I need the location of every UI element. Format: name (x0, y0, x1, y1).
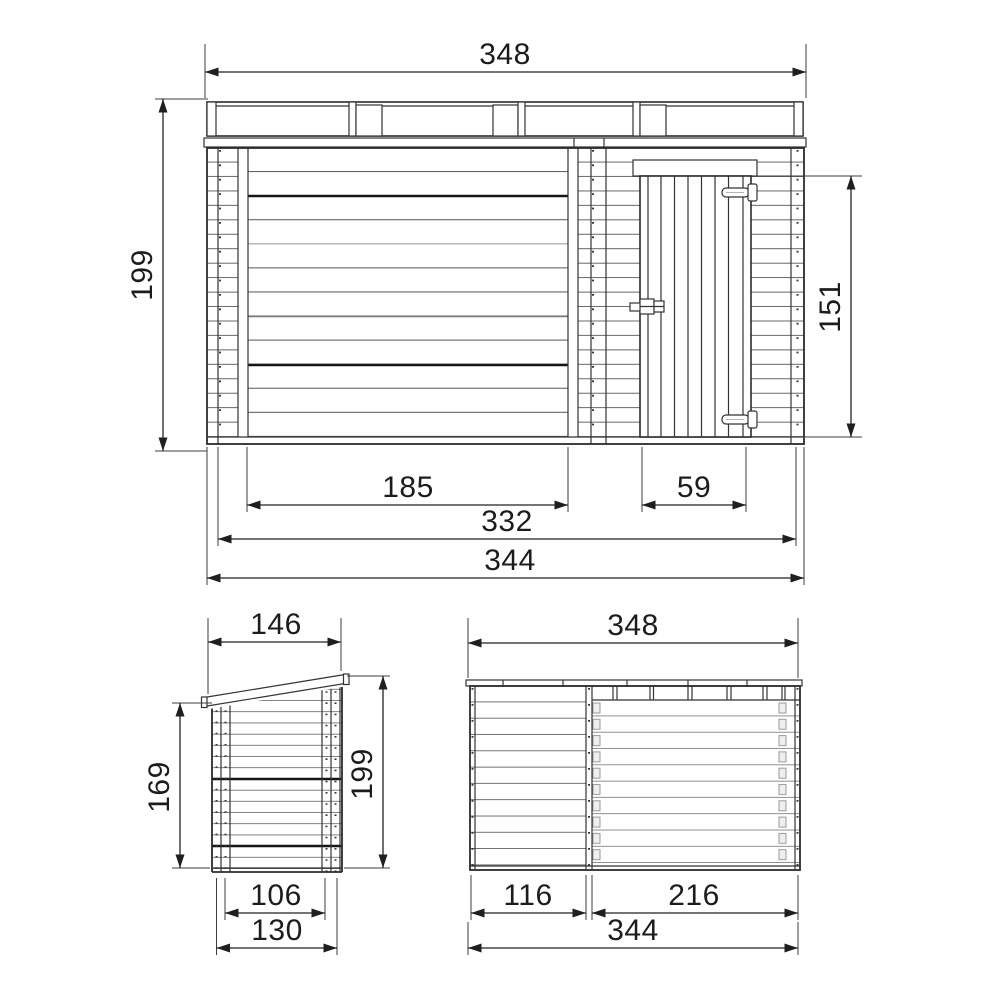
drawing-canvas: 348 199 151 185 59 (0, 0, 1000, 1000)
rear-elevation-view: 348 116 216 344 (466, 609, 802, 955)
dim-label-rear-216: 216 (668, 879, 720, 912)
rear-top-rail-ticks (613, 686, 785, 700)
shed-technical-drawing: 348 199 151 185 59 (0, 0, 1000, 1000)
dim-front-roof-width: 348 (205, 38, 806, 98)
dim-front-door-width: 59 (642, 447, 746, 512)
dim-label-front-348: 348 (479, 38, 531, 71)
dim-label-front-344: 344 (484, 544, 536, 577)
dim-label-front-185: 185 (382, 471, 434, 504)
front-left-log-ends (208, 148, 238, 437)
dim-label-rear-116: 116 (503, 879, 552, 912)
dim-label-rear-348: 348 (607, 609, 659, 642)
door-header-board (633, 160, 757, 176)
dim-side-wall-height: 169 (143, 703, 212, 868)
dim-label-side-169: 169 (143, 761, 176, 813)
dim-label-side-146: 146 (250, 608, 302, 641)
rear-right-section (592, 700, 800, 863)
dim-label-front-332: 332 (481, 505, 533, 538)
dim-rear-overall-width: 344 (468, 914, 798, 955)
dim-label-side-106: 106 (250, 879, 302, 912)
dim-front-height: 199 (126, 99, 208, 451)
front-door (630, 160, 757, 437)
dim-front-plank-wall-width: 185 (247, 447, 568, 512)
side-wall (212, 680, 342, 872)
dim-label-side-130: 130 (251, 914, 303, 947)
rear-wall (470, 686, 800, 870)
dim-label-front-59: 59 (677, 471, 711, 504)
front-plank-wall (248, 148, 568, 437)
front-mid-log-ends (578, 148, 606, 437)
dim-label-rear-344: 344 (607, 914, 659, 947)
front-roof-strip (204, 138, 806, 147)
rear-roof-strip (466, 680, 802, 686)
front-elevation-view: 348 199 151 185 59 (126, 38, 862, 585)
dim-label-side-199: 199 (346, 748, 379, 800)
dim-rear-roof-width: 348 (468, 609, 798, 678)
dim-label-front-199: 199 (126, 249, 159, 301)
side-elevation-view: 146 169 199 106 130 (143, 608, 390, 955)
front-roof-fascia (207, 102, 803, 136)
dim-side-overall-height: 199 (344, 676, 390, 868)
front-right-log-ends (791, 148, 804, 437)
rear-left-section (470, 686, 586, 866)
dim-label-front-151: 151 (814, 281, 847, 333)
dim-rear-left-section: 116 (471, 875, 586, 920)
